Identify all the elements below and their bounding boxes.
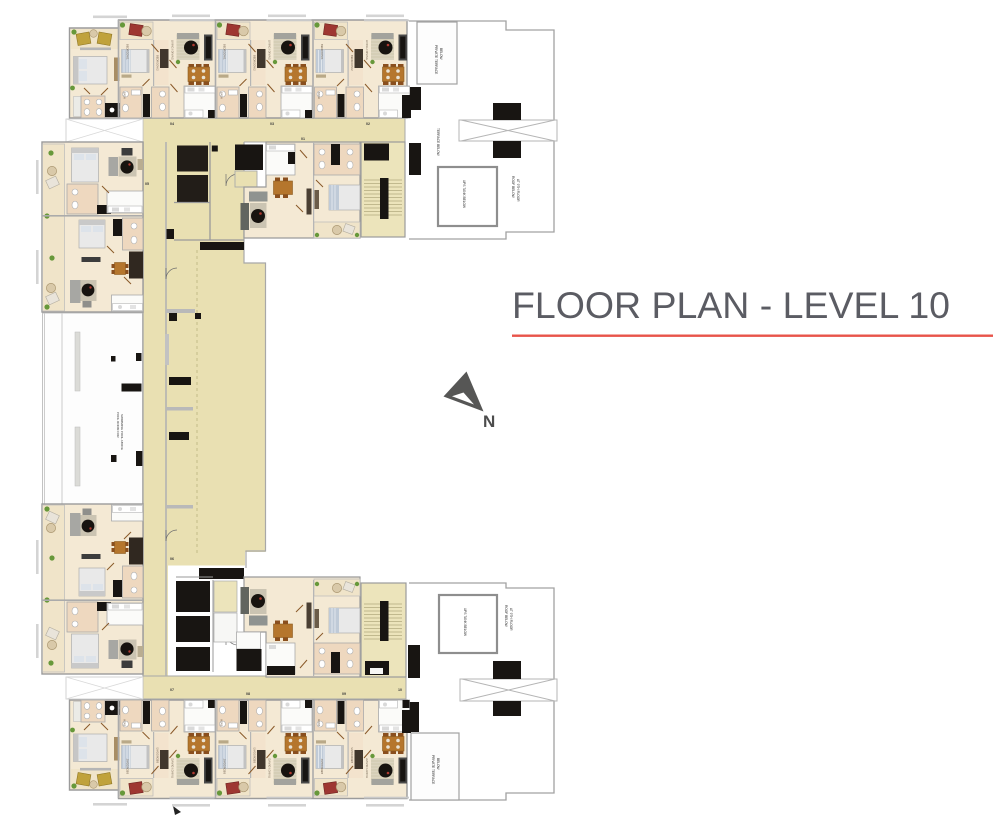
svg-text:ROOF BELOW: ROOF BELOW: [511, 176, 515, 198]
svg-text:10: 10: [398, 688, 402, 692]
svg-text:AT 9TH FLOOR: AT 9TH FLOOR: [509, 608, 513, 631]
svg-text:UPS TANK BELOW: UPS TANK BELOW: [462, 180, 466, 208]
svg-text:FLOOR PLAN - LEVEL 10: FLOOR PLAN - LEVEL 10: [512, 285, 950, 326]
svg-text:N: N: [483, 412, 495, 431]
svg-text:09: 09: [342, 692, 346, 696]
svg-text:POOL ROOM FOR: POOL ROOM FOR: [116, 412, 120, 438]
svg-text:02: 02: [366, 122, 370, 126]
svg-text:SWIMMING POOL ABOVE: SWIMMING POOL ABOVE: [120, 414, 124, 450]
svg-text:05: 05: [145, 182, 149, 186]
svg-text:07: 07: [170, 688, 174, 692]
svg-text:03: 03: [270, 122, 274, 126]
svg-text:PRIVATE TERRACE: PRIVATE TERRACE: [431, 755, 435, 784]
svg-text:BELOW: BELOW: [436, 758, 440, 770]
svg-text:AT 9TH FLOOR: AT 9TH FLOOR: [516, 179, 520, 202]
svg-text:08: 08: [246, 692, 250, 696]
svg-text:BELOW: BELOW: [439, 48, 443, 60]
svg-text:UPS TANK BELOW: UPS TANK BELOW: [463, 608, 467, 636]
svg-text:TERRACE BELOW: TERRACE BELOW: [436, 128, 440, 156]
svg-text:PRIVATE TERRACE: PRIVATE TERRACE: [434, 45, 438, 74]
svg-text:04: 04: [170, 122, 174, 126]
svg-text:06: 06: [170, 557, 174, 561]
svg-text:ROOF BELOW: ROOF BELOW: [504, 605, 508, 627]
svg-text:01: 01: [301, 137, 305, 141]
